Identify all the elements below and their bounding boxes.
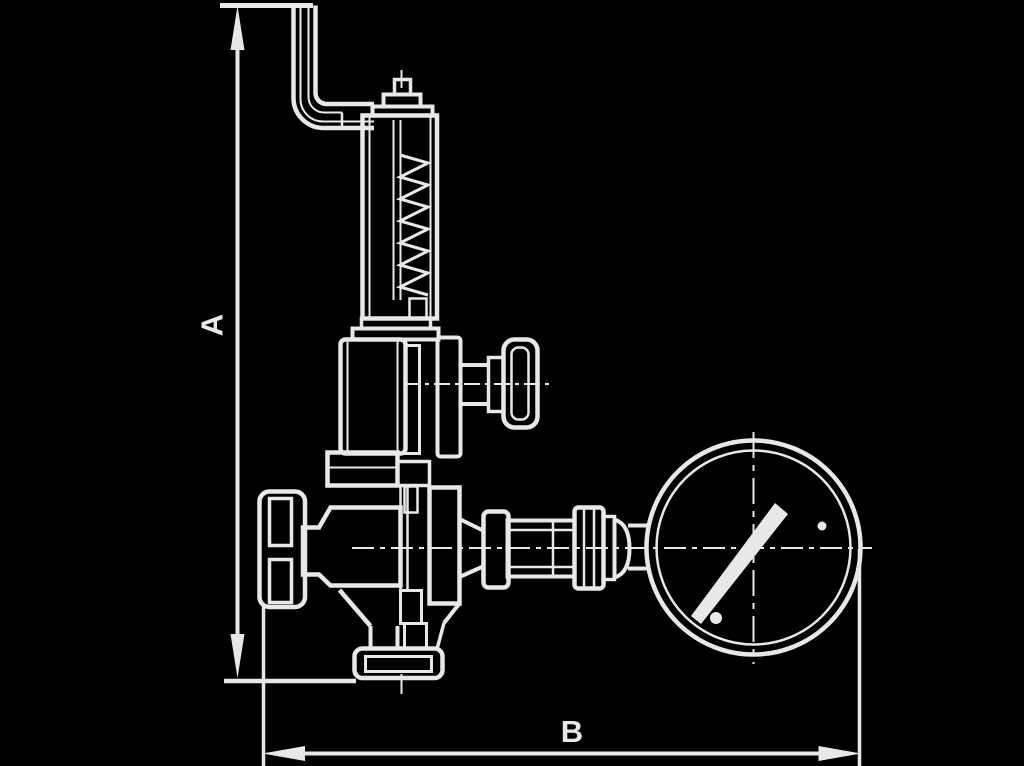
- spring-housing: [353, 116, 439, 340]
- valve-technical-drawing: A B: [0, 0, 1024, 766]
- spring-coil: [400, 155, 428, 295]
- gauge-dot-left: [710, 612, 722, 624]
- bonnet-flange-main: [328, 453, 398, 486]
- test-handle: [438, 338, 538, 457]
- bonnet-flange: [328, 453, 430, 486]
- lever-inner-wall: [316, 6, 375, 105]
- outlet-flange: [430, 488, 460, 604]
- handwheel-spoke-bottom: [270, 560, 292, 603]
- right-slant-lower: [437, 623, 444, 649]
- handwheel-spoke-top: [270, 499, 292, 546]
- bonnet-flange-right: [398, 462, 430, 486]
- handwheel-rim: [260, 492, 306, 608]
- handwheel: [260, 492, 306, 608]
- spring-seat: [410, 299, 427, 319]
- lift-lever: [294, 6, 375, 129]
- body-outline: [303, 508, 401, 586]
- valve-body: [303, 486, 418, 591]
- bonnet-shell: [341, 340, 406, 454]
- reducer-cone-top: [460, 519, 485, 531]
- bonnet: [341, 340, 420, 454]
- dimension-b-label: B: [561, 714, 583, 749]
- diagram-canvas: A B: [0, 0, 1024, 766]
- drain-block-upper: [401, 591, 422, 624]
- dimension-a: A: [195, 6, 357, 682]
- lever-outer-wall: [294, 6, 375, 129]
- union-nut-a: [484, 512, 509, 588]
- bottom-flange: [355, 649, 443, 679]
- dimension-a-label: A: [195, 314, 230, 336]
- dimension-b-arrow-right-icon: [819, 746, 862, 761]
- funnel-left-slant: [340, 590, 371, 626]
- gauge-needle: [691, 503, 788, 624]
- outlet-funnel: [340, 590, 460, 649]
- dimension-a-arrow-up-icon: [231, 6, 245, 50]
- reducer-cone-bottom: [460, 566, 485, 577]
- bottom-flange-outer: [355, 649, 443, 679]
- right-slant-upper: [444, 604, 459, 623]
- gauge-dot-right: [818, 522, 827, 531]
- dimension-a-arrow-down-icon: [231, 634, 245, 678]
- dimension-b-arrow-left-icon: [263, 746, 306, 761]
- handle-bracket: [438, 338, 461, 457]
- bottom-flange-inner: [366, 657, 432, 672]
- gauge-piping: [430, 488, 649, 604]
- drain-block-lower: [405, 624, 427, 649]
